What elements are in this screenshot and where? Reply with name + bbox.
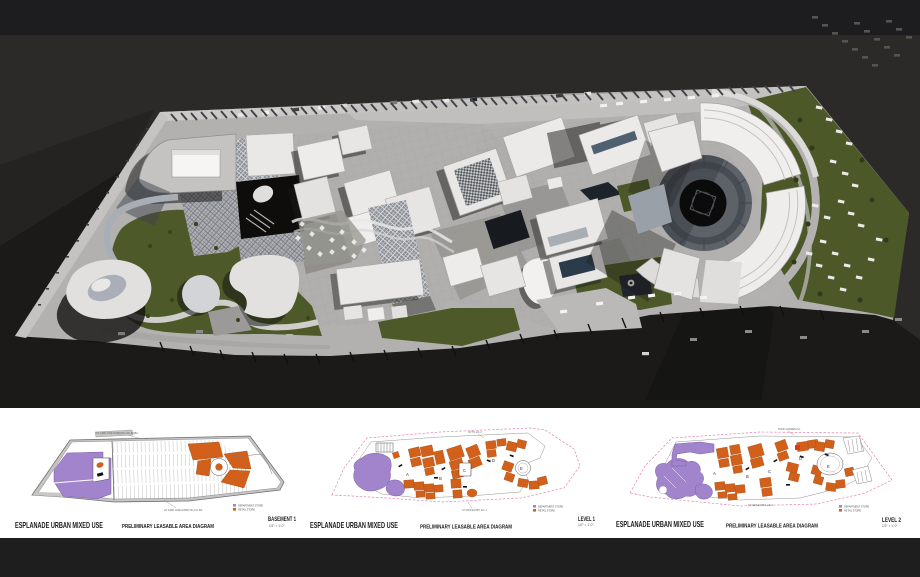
svg-text:RETAIL STORE: RETAIL STORE: [538, 510, 555, 513]
svg-text:1/2″ = 1′-0″: 1/2″ = 1′-0″: [882, 524, 898, 528]
svg-text:ESPLANADE URBAN MIXED USE: ESPLANADE URBAN MIXED USE: [310, 521, 398, 530]
svg-text:RETAIL STORE: RETAIL STORE: [238, 509, 255, 512]
svg-text:1/2″ = 1′-0″: 1/2″ = 1′-0″: [578, 523, 594, 527]
svg-text:DEPARTMENT STORE: DEPARTMENT STORE: [844, 506, 869, 509]
svg-text:A: A: [406, 472, 409, 477]
svg-text:ESPLANADE URBAN MIXED USE: ESPLANADE URBAN MIXED USE: [616, 520, 704, 529]
svg-text:AT GRID ENTRY LVL 1: AT GRID ENTRY LVL 1: [462, 509, 487, 512]
svg-text:BASEMENT 1: BASEMENT 1: [268, 516, 296, 523]
svg-text:PRELIMINARY LEASABLE AREA DIAG: PRELIMINARY LEASABLE AREA DIAGRAM: [726, 524, 818, 530]
svg-text:ESPLANADE URBAN MIXED USE: ESPLANADE URBAN MIXED USE: [15, 521, 103, 530]
svg-text:A: A: [713, 471, 716, 476]
svg-text:PRELIMINARY LEASABLE AREA DIAG: PRELIMINARY LEASABLE AREA DIAGRAM: [420, 525, 512, 531]
svg-text:RETAIL STORE: RETAIL STORE: [844, 510, 861, 513]
svg-text:DEPARTMENT STORE: DEPARTMENT STORE: [238, 505, 263, 508]
svg-text:D: D: [492, 458, 495, 463]
svg-text:D: D: [799, 456, 802, 461]
svg-text:AT GRID LINE PARKING LVL B1/B2: AT GRID LINE PARKING LVL B1/B2: [96, 431, 138, 435]
svg-text:C: C: [463, 468, 466, 473]
svg-text:C: C: [768, 469, 771, 474]
svg-text:PRELIMINARY LEASABLE AREA DIAG: PRELIMINARY LEASABLE AREA DIAGRAM: [122, 524, 214, 530]
svg-text:E: E: [827, 464, 830, 469]
svg-text:UP TO LVL 2: UP TO LVL 2: [468, 431, 482, 434]
svg-text:1/2″ = 1′-0″: 1/2″ = 1′-0″: [269, 524, 285, 528]
svg-text:ROOF GARDEN LVL: ROOF GARDEN LVL: [778, 428, 801, 431]
svg-text:AT GRID ENTRY LVL 2: AT GRID ENTRY LVL 2: [748, 504, 773, 507]
svg-text:B: B: [439, 476, 442, 481]
svg-text:E: E: [520, 466, 523, 471]
svg-text:B: B: [746, 474, 749, 479]
svg-text:LEVEL 2: LEVEL 2: [882, 517, 901, 524]
svg-text:AT GRID LINE RAMP DN LVL B2: AT GRID LINE RAMP DN LVL B2: [164, 508, 203, 512]
svg-text:LEVEL 1: LEVEL 1: [578, 516, 595, 523]
svg-text:DEPARTMENT STORE: DEPARTMENT STORE: [538, 506, 563, 509]
